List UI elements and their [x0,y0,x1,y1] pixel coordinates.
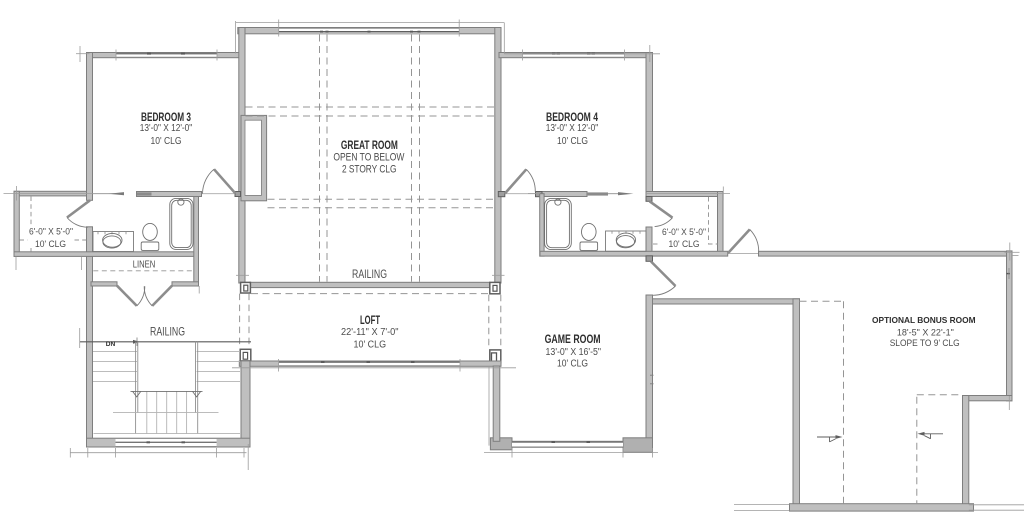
svg-text:10' CLG: 10' CLG [669,239,700,250]
svg-text:OPEN TO BELOW: OPEN TO BELOW [333,152,404,164]
svg-text:18'-5" X 22'-1": 18'-5" X 22'-1" [897,327,954,338]
svg-text:LOFT: LOFT [360,314,380,327]
svg-text:10' CLG: 10' CLG [557,136,588,147]
svg-text:GAME ROOM: GAME ROOM [545,333,601,346]
svg-text:13'-0" X 16'-5": 13'-0" X 16'-5" [546,347,602,358]
svg-text:10' CLG: 10' CLG [151,136,182,147]
svg-text:6'-0" X 5'-0": 6'-0" X 5'-0" [662,227,706,238]
svg-text:RAILING: RAILING [352,268,387,281]
svg-text:10' CLG: 10' CLG [354,340,387,351]
svg-text:LINEN: LINEN [133,259,156,270]
svg-text:10' CLG: 10' CLG [35,239,66,250]
svg-text:SLOPE TO 9' CLG: SLOPE TO 9' CLG [890,338,960,349]
svg-text:13'-0" X 12'-0": 13'-0" X 12'-0" [546,123,599,134]
svg-text:6'-0" X 5'-0": 6'-0" X 5'-0" [29,227,73,238]
svg-text:22'-11" X 7'-0": 22'-11" X 7'-0" [341,327,399,338]
svg-text:10' CLG: 10' CLG [557,359,588,370]
svg-text:OPTIONAL BONUS ROOM: OPTIONAL BONUS ROOM [872,315,976,325]
svg-text:RAILING: RAILING [150,325,185,338]
svg-text:2 STORY CLG: 2 STORY CLG [342,163,397,175]
svg-text:GREAT ROOM: GREAT ROOM [341,139,398,152]
svg-text:13'-0" X 12'-0": 13'-0" X 12'-0" [140,123,193,134]
svg-text:DN: DN [106,341,116,348]
